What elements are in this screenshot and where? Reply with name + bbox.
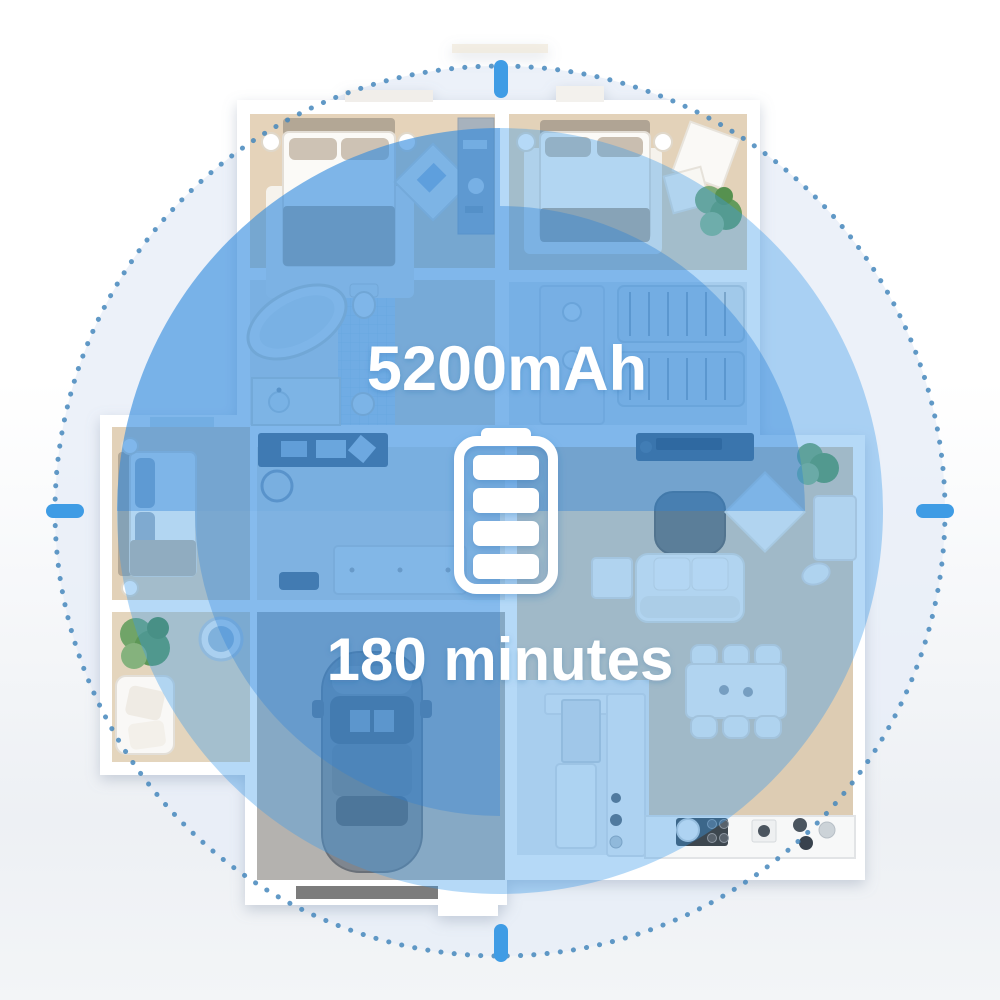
tick-left: [46, 504, 84, 518]
capacity-label: 5200mAh: [367, 334, 647, 404]
wall-lamp-icon: [654, 133, 672, 151]
tick-bottom: [494, 924, 508, 962]
battery-runtime-infographic: 5200mAh 180 minutes: [0, 0, 1000, 1000]
garage-door: [296, 886, 438, 899]
tick-right: [916, 504, 954, 518]
tick-top: [494, 60, 508, 98]
coverage-sector-upper-left: [117, 128, 500, 511]
runtime-label: 180 minutes: [327, 626, 674, 693]
pergola: [452, 44, 548, 53]
infographic-canvas: 5200mAh 180 minutes: [0, 0, 1000, 1000]
